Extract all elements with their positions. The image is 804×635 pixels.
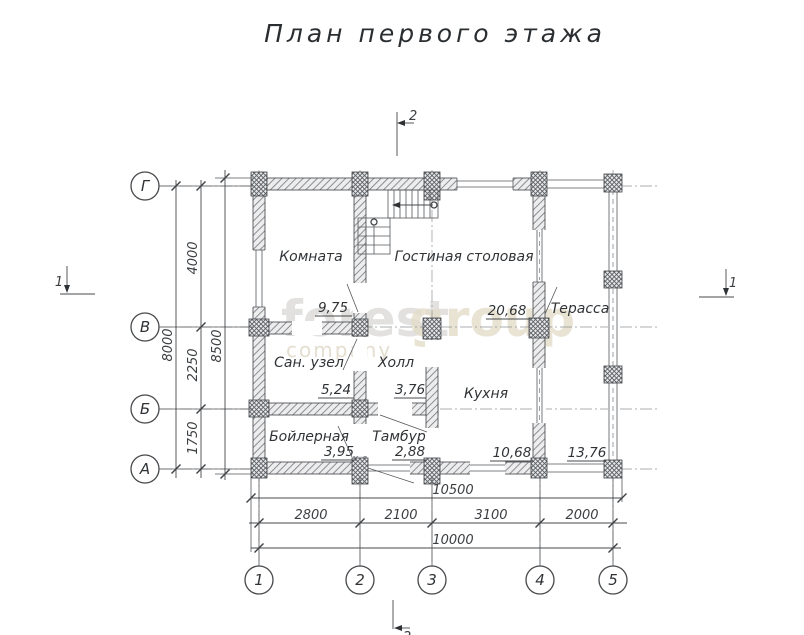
dim-seg-1750: 1750 — [186, 421, 201, 454]
door-komnata — [353, 283, 367, 313]
dim-seg-2800: 2800 — [294, 508, 327, 523]
room-area-terassa: 13,76 — [568, 445, 607, 461]
room-area-gostinaya: 20,68 — [488, 303, 527, 319]
section-marker-bottom: 2 — [393, 600, 411, 635]
axis-col-2: 2 — [355, 571, 365, 589]
axis-row-b: Б — [140, 400, 150, 418]
door-san-uzel — [353, 337, 367, 371]
terrace-post — [604, 460, 622, 478]
window-top — [457, 177, 513, 191]
window-kitchen — [470, 461, 505, 475]
dim-seg-4000: 4000 — [186, 241, 201, 274]
section-marker-left: 1 — [55, 266, 95, 294]
room-label-san-uzel: Сан. узел — [274, 355, 344, 371]
room-label-boilernaya: Бойлерная — [269, 429, 349, 445]
section-label-right: 1 — [729, 276, 737, 291]
door-v-wall — [292, 321, 322, 335]
page-title: План первого этажа — [264, 19, 606, 48]
axis-row-v: В — [140, 318, 150, 336]
room-label-komnata: Комната — [279, 249, 343, 265]
axis-col-4: 4 — [535, 571, 545, 589]
dim-seg-2000: 2000 — [565, 508, 598, 523]
room-area-tambur: 2,88 — [395, 444, 425, 460]
terrace-post — [604, 366, 622, 383]
room-area-holl: 3,76 — [395, 382, 425, 398]
window-left — [252, 250, 266, 307]
dim-left-overall: 8000 — [161, 328, 176, 361]
dimensions-left: 8000 4000 2250 1750 8500 — [159, 170, 253, 480]
room-label-tambur: Тамбур — [372, 429, 426, 445]
axis-markers-bottom: 1 2 3 4 5 — [245, 566, 627, 594]
axis-row-a: А — [139, 460, 150, 478]
window-terrace-lower — [532, 368, 546, 423]
axis-col-3: 3 — [427, 571, 437, 589]
section-label-left: 1 — [55, 275, 63, 290]
room-area-komnata: 9,75 — [318, 300, 348, 316]
stair-direction-arrow — [392, 202, 400, 208]
section-marker-right: 1 — [699, 269, 737, 297]
door-boilernaya — [353, 424, 367, 456]
room-area-boilernaya: 3,95 — [324, 444, 354, 460]
floor-plan-drawing: План первого этажа forest group company — [0, 0, 804, 635]
door-tambur-holl — [378, 402, 412, 416]
room-label-holl: Холл — [377, 355, 414, 371]
room-labels: Комната 9,75 Гостиная столовая 20,68 Тер… — [269, 249, 609, 461]
section-label-bottom: 2 — [403, 630, 411, 635]
terrace-post — [604, 271, 622, 288]
terrace-post — [604, 174, 622, 192]
axis-markers-left: Г В Б А — [131, 172, 159, 483]
door-holl-kuhnya — [425, 340, 439, 367]
stair-newel — [371, 219, 377, 225]
room-area-kuhnya: 10,68 — [493, 445, 532, 461]
dimensions-bottom: 10500 2800 2100 3100 2000 10000 — [247, 478, 628, 566]
room-label-gostinaya: Гостиная столовая — [394, 249, 533, 265]
dim-left-outer: 8500 — [210, 329, 225, 362]
dim-bottom-outer: 10500 — [432, 483, 473, 498]
door-tambur-kuhnya — [425, 428, 439, 458]
room-label-kuhnya: Кухня — [464, 386, 508, 402]
window-terrace-upper — [532, 230, 546, 282]
axis-col-5: 5 — [608, 571, 618, 589]
dim-seg-3100: 3100 — [474, 508, 507, 523]
section-label-top: 2 — [409, 109, 417, 124]
axis-col-1: 1 — [254, 571, 264, 589]
section-marker-top: 2 — [397, 109, 417, 156]
door-entrance — [368, 461, 410, 475]
room-area-san-uzel: 5,24 — [321, 382, 351, 398]
dim-seg-2250: 2250 — [186, 348, 201, 381]
dim-seg-2100: 2100 — [384, 508, 417, 523]
room-label-terassa: Терасса — [551, 301, 610, 317]
plan-canvas: План первого этажа forest group company — [0, 0, 804, 635]
dim-bottom-overall: 10000 — [432, 533, 473, 548]
